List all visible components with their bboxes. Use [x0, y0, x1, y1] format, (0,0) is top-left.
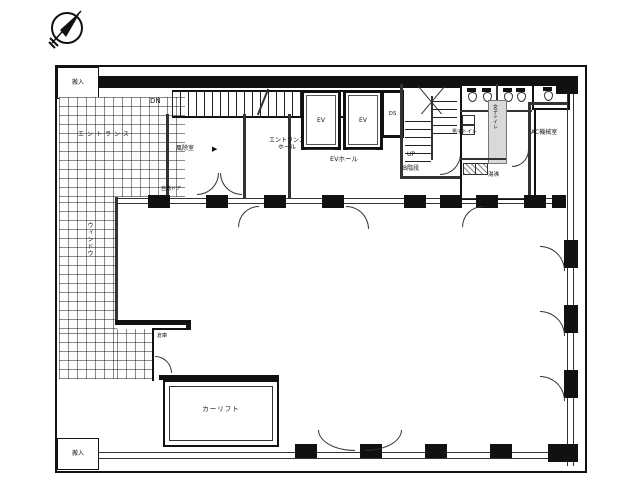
toilet-icon	[467, 88, 476, 101]
column-block	[295, 444, 317, 458]
elevator1-label: EV	[304, 93, 338, 147]
column-block	[206, 195, 228, 208]
column-block	[404, 195, 426, 208]
stair-divider	[431, 96, 433, 160]
toilet-icon	[516, 88, 525, 101]
column-block	[556, 76, 578, 94]
tiled-floor-window-strip	[59, 197, 117, 329]
auto-door-label: 自動ドア	[161, 187, 181, 193]
delivery-entry-bottom: 搬入	[57, 438, 99, 470]
sink-icon	[462, 115, 475, 125]
column-block	[564, 370, 578, 398]
ac-machine-room-label: AC機械室	[531, 130, 557, 137]
wall-segment	[288, 114, 291, 198]
elevator2-label: EV	[346, 93, 380, 147]
column-block	[425, 444, 447, 458]
duct-space-label: DS	[384, 93, 401, 135]
column-block	[440, 195, 462, 208]
column-block	[490, 444, 512, 458]
mens-wc-label: 男子トイレ	[452, 130, 477, 136]
column-block	[322, 195, 344, 208]
window-line-label: ウィンドウ	[86, 222, 92, 257]
wall-segment	[460, 158, 506, 160]
ev-hall-label: EVホール	[330, 156, 358, 163]
wall-segment	[400, 176, 462, 179]
delivery-bottom-label: 搬入	[72, 451, 84, 458]
wall-line	[567, 76, 568, 466]
column-block	[264, 195, 286, 208]
stair-main	[172, 90, 372, 118]
womens-wc-label: 女子トイレ	[492, 104, 497, 129]
column-block	[148, 195, 170, 208]
b-stair-up-label: UP	[407, 152, 415, 159]
car-lift-platform	[169, 386, 273, 441]
tiled-floor-step	[117, 329, 152, 379]
elevator-door-line	[306, 149, 334, 150]
stair-dn-label: DN	[150, 97, 161, 105]
delivery-top-label: 搬入	[72, 80, 84, 87]
column-block	[564, 240, 578, 268]
wall-line	[97, 458, 578, 459]
column-block	[552, 195, 566, 208]
vestibule-label: 風除室	[176, 146, 194, 153]
wall-segment	[528, 102, 568, 105]
floor-plan-canvas: 搬入 エントランス ウィンドウ 倉庫 カーリフト DN UP 風除室 ▶ 自動ド…	[0, 0, 637, 480]
wall-segment	[115, 320, 191, 325]
car-lift-label: カーリフト	[165, 406, 277, 413]
elevator-shaft-2: EV	[343, 90, 383, 150]
vestibule-arrow-icon: ▶	[212, 145, 217, 153]
elevator-door-line	[348, 149, 376, 150]
entrance-label: エントランス	[78, 132, 132, 139]
wall-segment	[400, 84, 403, 178]
counter-fixture	[475, 163, 488, 175]
wall-line	[573, 76, 574, 466]
storage-label: 倉庫	[157, 334, 167, 340]
toilet-icon	[543, 87, 552, 100]
tiled-floor-window-strip-low	[59, 329, 117, 379]
car-lift: カーリフト	[163, 380, 279, 447]
column-block	[548, 444, 578, 462]
hot-water-label: 湯沸	[488, 172, 499, 178]
column-block	[524, 195, 546, 208]
column-block	[564, 305, 578, 333]
north-arrow-icon	[42, 2, 92, 52]
b-stair-label: B階段	[403, 166, 419, 173]
elevator-shaft-1: EV	[301, 90, 341, 150]
wall-segment	[243, 114, 246, 198]
wall-segment	[115, 197, 118, 323]
delivery-entry-top: 搬入	[57, 67, 99, 99]
